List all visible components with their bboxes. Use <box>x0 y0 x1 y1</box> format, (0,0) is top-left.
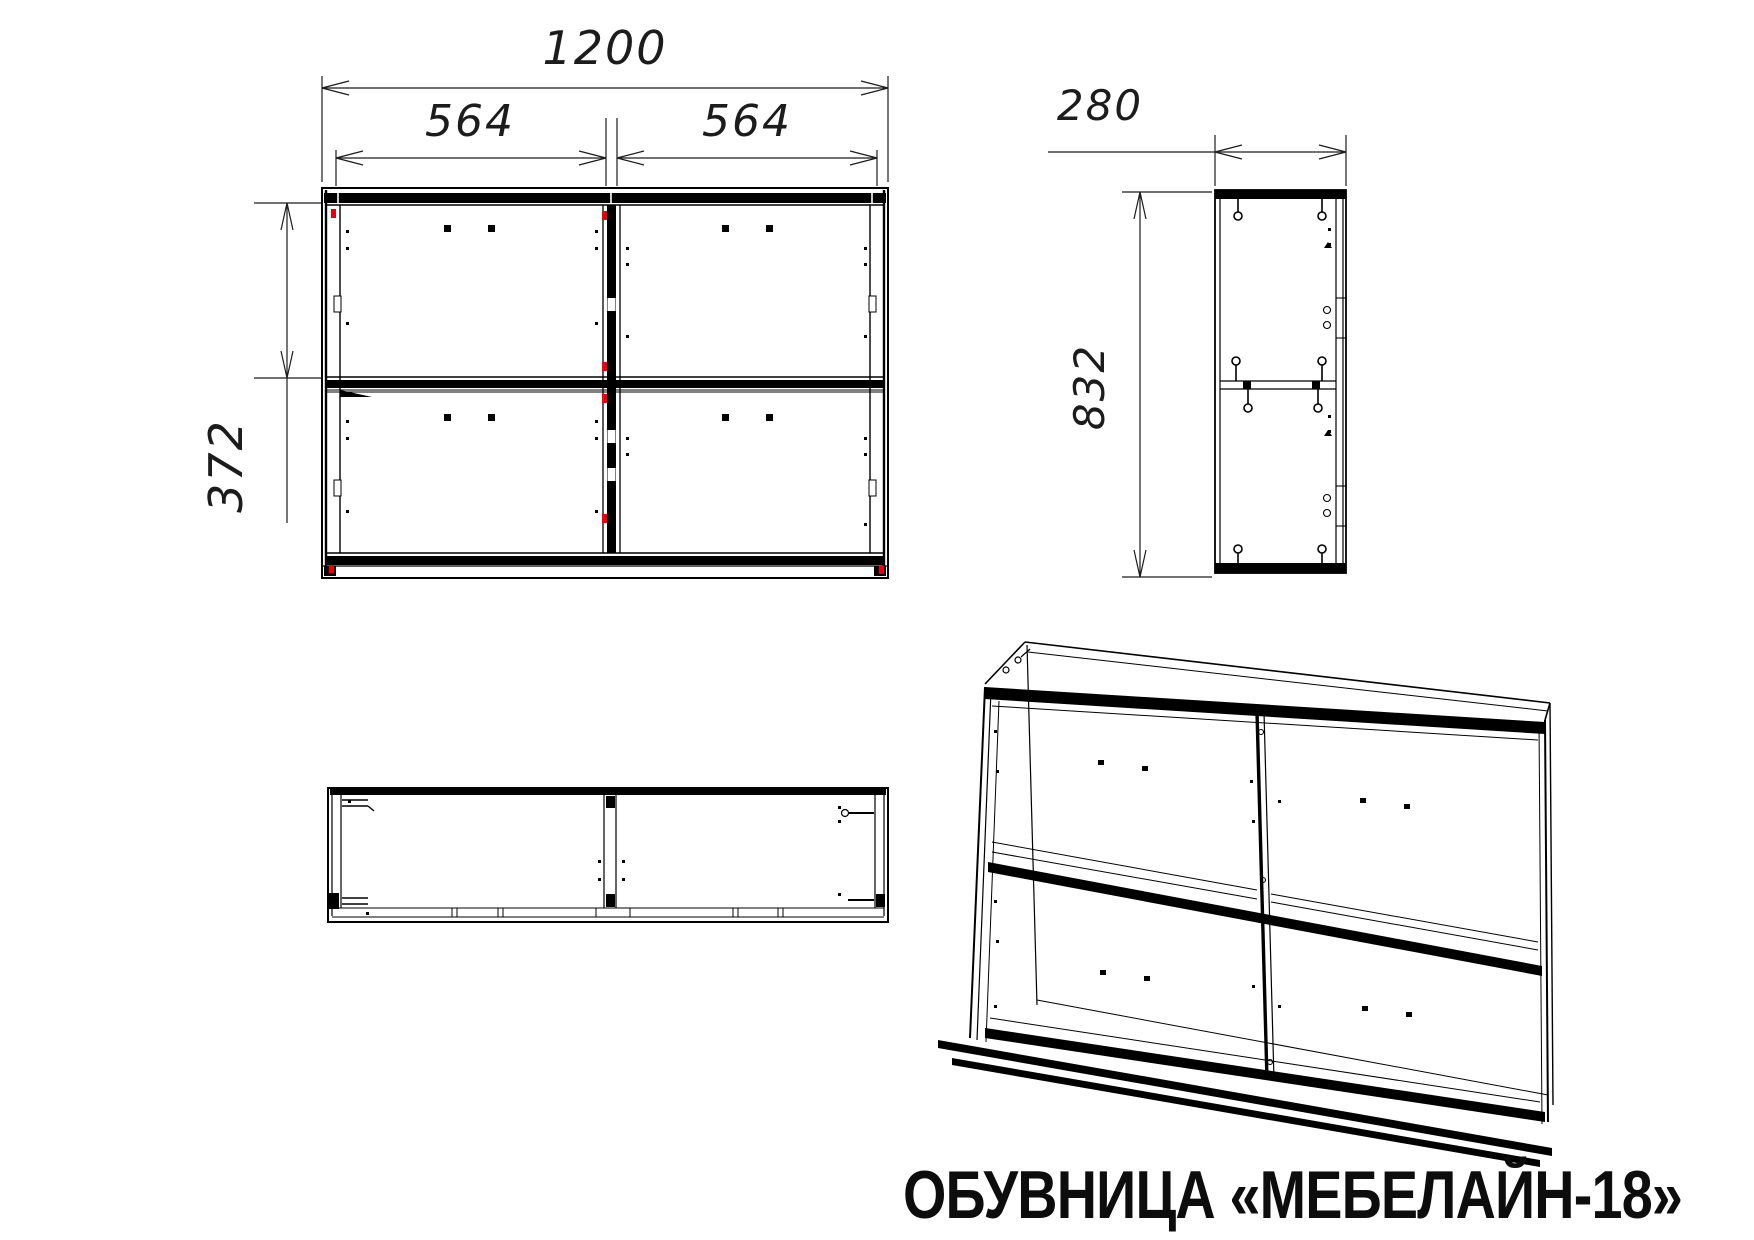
dim-front-right-section: 564 <box>702 96 792 147</box>
iso-left-side-panel <box>970 645 1037 1042</box>
iso-view <box>938 642 1553 1167</box>
top-view-fittings <box>329 792 885 915</box>
drawing-title: ОБУВНИЦА «МЕБЕЛАЙН-18» <box>903 1156 1682 1234</box>
front-view: 1200 564 564 372 <box>199 21 888 578</box>
dim-front-total-width: 1200 <box>542 21 667 75</box>
dim-side-depth: 280 <box>1057 81 1143 130</box>
side-view: 280 832 <box>1048 81 1346 577</box>
iso-center-divider <box>1257 712 1274 1080</box>
top-view <box>328 788 888 922</box>
dim-front-left-section: 564 <box>425 96 515 147</box>
front-drill-hole-dots <box>346 230 867 526</box>
dim-side-height: 832 <box>1065 344 1114 430</box>
iso-right-side-panel <box>1539 703 1553 1124</box>
iso-top-panel <box>985 642 1550 740</box>
technical-drawing-canvas: 1200 564 564 372 <box>0 0 1754 1240</box>
dim-front-section-height: 372 <box>199 419 253 513</box>
front-dimension-lines <box>254 76 888 523</box>
iso-bottom-panel <box>938 1000 1552 1167</box>
